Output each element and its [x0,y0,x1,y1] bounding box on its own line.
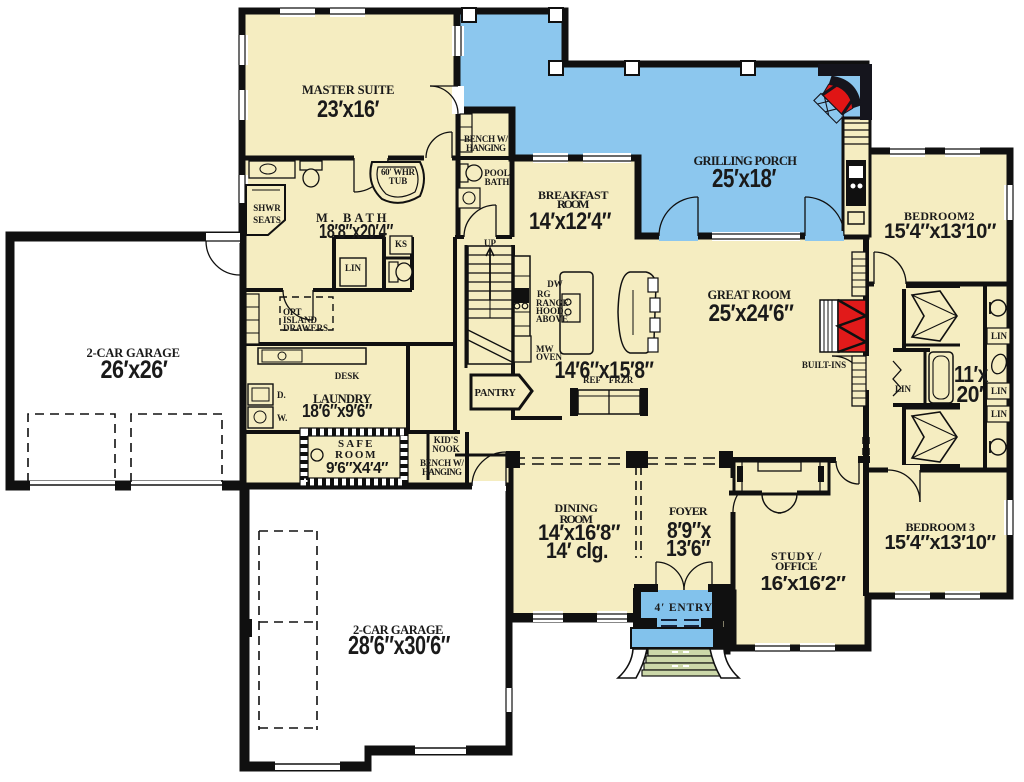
svg-text:18′8″x20′4″: 18′8″x20′4″ [319,221,394,243]
svg-text:20′: 20′ [957,381,985,407]
svg-text:14′6″x15′8″: 14′6″x15′8″ [555,357,655,384]
svg-text:FRZR: FRZR [609,375,634,385]
svg-text:LIN: LIN [895,384,912,394]
svg-text:13′6″: 13′6″ [666,535,710,561]
svg-text:DESK: DESK [335,371,360,381]
svg-text:SEATS: SEATS [253,215,281,225]
svg-text:HANGING: HANGING [466,143,506,153]
svg-text:15′4″x13′10″: 15′4″x13′10″ [884,220,996,243]
svg-text:14′ clg.: 14′ clg. [546,538,608,563]
svg-text:REF: REF [583,375,602,385]
svg-text:PANTRY: PANTRY [475,388,518,399]
svg-text:DRAWERS: DRAWERS [283,323,328,333]
svg-text:UP: UP [484,238,496,248]
svg-text:BUILT-INS: BUILT-INS [802,360,846,370]
svg-text:LIN: LIN [991,331,1008,341]
svg-text:25′x24′6″: 25′x24′6″ [709,300,795,327]
svg-text:9′6″X4′4″: 9′6″X4′4″ [326,460,389,477]
svg-text:23′x16′: 23′x16′ [317,96,380,123]
svg-text:LIN: LIN [991,409,1008,419]
svg-text:TUB: TUB [389,176,408,186]
svg-text:W.: W. [277,413,287,423]
svg-text:15′4″x13′10″: 15′4″x13′10″ [885,532,997,554]
svg-text:4′ ENTRY: 4′ ENTRY [655,602,714,614]
svg-text:BATH: BATH [485,177,510,187]
svg-text:16′x16′2″: 16′x16′2″ [761,573,847,595]
svg-text:MASTER SUITE: MASTER SUITE [302,83,396,97]
svg-text:DW: DW [547,279,563,289]
svg-text:LIN: LIN [345,263,362,273]
svg-text:26′x26′: 26′x26′ [101,356,168,384]
svg-text:KS: KS [395,239,407,249]
svg-text:ABOVE: ABOVE [536,314,568,324]
svg-text:SHWR: SHWR [253,203,281,213]
svg-text:NOOK: NOOK [432,444,460,454]
svg-text:OFFICE: OFFICE [775,559,819,573]
svg-text:D.: D. [277,390,286,400]
svg-text:LIN: LIN [991,386,1008,396]
svg-text:14′x12′4″: 14′x12′4″ [529,208,612,235]
svg-text:25′x18′: 25′x18′ [712,163,776,193]
svg-text:18′6″x9′6″: 18′6″x9′6″ [302,401,373,421]
svg-text:HANGING: HANGING [422,467,462,477]
svg-text:28′6″x30′6″: 28′6″x30′6″ [348,630,450,660]
svg-text:FOYER: FOYER [669,504,709,518]
